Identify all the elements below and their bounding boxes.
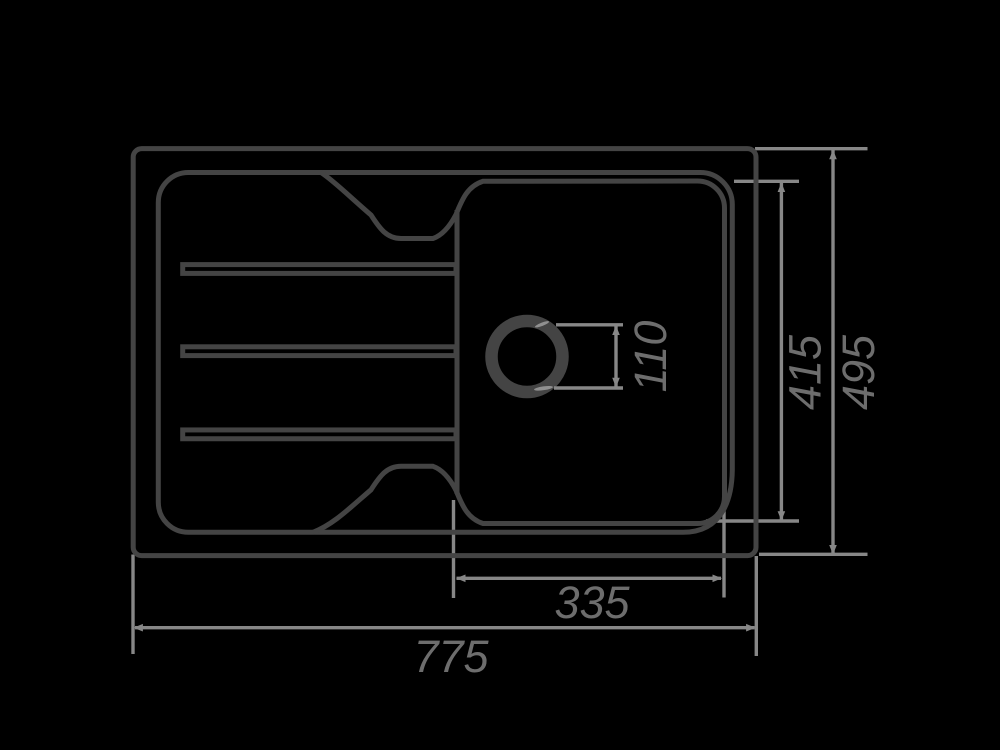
svg-text:775: 775 xyxy=(413,631,489,682)
svg-text:415: 415 xyxy=(780,334,831,410)
svg-text:495: 495 xyxy=(833,334,884,410)
svg-text:335: 335 xyxy=(554,577,630,628)
svg-text:110: 110 xyxy=(625,321,676,393)
